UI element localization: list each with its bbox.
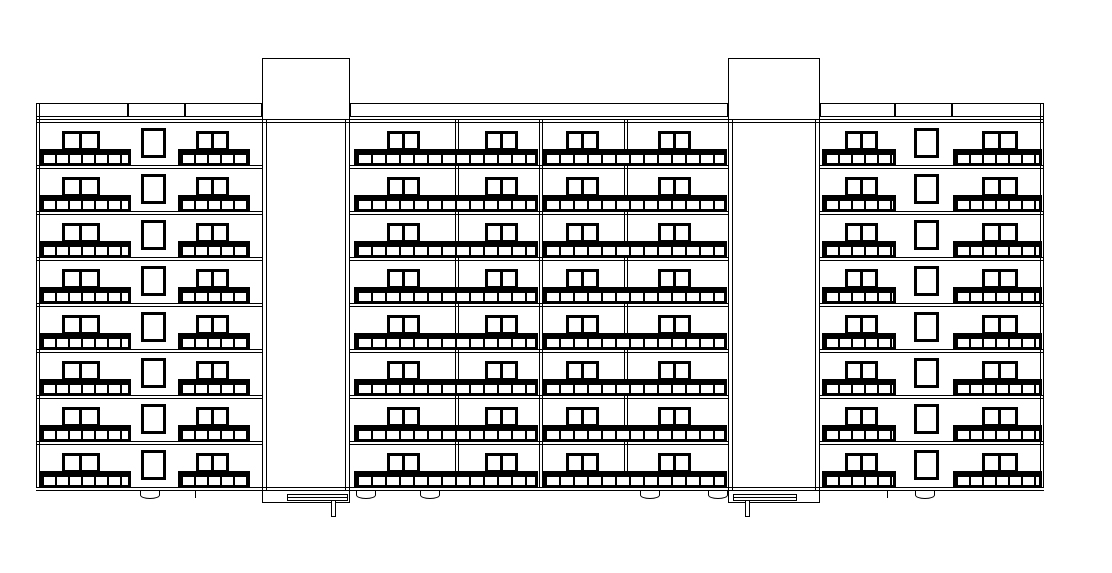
floor-slab-line bbox=[36, 352, 262, 353]
balcony-balusters bbox=[953, 385, 1042, 395]
balcony-window bbox=[566, 177, 599, 197]
floor-slab-line bbox=[36, 306, 262, 307]
balcony-balusters bbox=[354, 477, 538, 487]
balcony-balusters bbox=[39, 247, 131, 257]
stair-tower-2-wall-inner-line bbox=[732, 119, 733, 490]
balcony-window bbox=[387, 361, 420, 381]
floor-slab-line bbox=[36, 441, 262, 442]
balcony-balusters bbox=[542, 477, 727, 487]
balcony-window bbox=[566, 223, 599, 243]
balcony-window bbox=[845, 407, 878, 427]
window-mullion bbox=[79, 456, 82, 470]
building-edge-line bbox=[1043, 103, 1044, 487]
window-mullion bbox=[998, 410, 1001, 424]
window-mullion bbox=[402, 226, 405, 240]
stair-tower-2-wall-inner-line bbox=[815, 119, 816, 490]
small-window bbox=[914, 358, 939, 388]
balcony-balusters bbox=[354, 431, 538, 441]
balcony-window bbox=[196, 453, 229, 473]
canopy-post bbox=[745, 500, 750, 517]
window-mullion bbox=[998, 226, 1001, 240]
balcony-balusters bbox=[354, 247, 538, 257]
balcony-window bbox=[62, 269, 100, 289]
balcony-balusters bbox=[953, 293, 1042, 303]
drain-tick bbox=[887, 490, 888, 498]
window-mullion bbox=[998, 134, 1001, 148]
vent-arc bbox=[708, 491, 728, 499]
balcony-balusters bbox=[354, 385, 538, 395]
window-mullion bbox=[860, 318, 863, 332]
window-mullion bbox=[581, 272, 584, 286]
window-mullion bbox=[860, 456, 863, 470]
floor-slab-line bbox=[820, 306, 1044, 307]
balcony-balusters bbox=[953, 247, 1042, 257]
floor-slab-line bbox=[36, 165, 262, 166]
floor-slab-line bbox=[36, 257, 262, 258]
balcony-balusters bbox=[39, 201, 131, 211]
window-mullion bbox=[500, 364, 503, 378]
floor-slab-line bbox=[820, 398, 1044, 399]
balcony-balusters bbox=[178, 431, 250, 441]
balcony-balusters bbox=[39, 431, 131, 441]
window-mullion bbox=[581, 318, 584, 332]
floor-slab-line bbox=[36, 260, 262, 261]
balcony-window bbox=[196, 223, 229, 243]
drain-tick bbox=[195, 490, 196, 498]
small-window bbox=[141, 450, 166, 480]
balcony-window bbox=[387, 407, 420, 427]
window-mullion bbox=[211, 318, 214, 332]
balcony-window bbox=[485, 223, 518, 243]
balcony-window bbox=[845, 223, 878, 243]
parapet-band-segment bbox=[952, 103, 1044, 117]
window-mullion bbox=[402, 318, 405, 332]
small-window bbox=[141, 358, 166, 388]
vent-arc bbox=[356, 491, 376, 499]
balcony-window bbox=[387, 269, 420, 289]
small-window bbox=[141, 174, 166, 204]
balcony-balusters bbox=[542, 339, 727, 349]
window-mullion bbox=[211, 226, 214, 240]
balcony-balusters bbox=[178, 339, 250, 349]
floor-slab-line bbox=[36, 211, 262, 212]
entrance-canopy bbox=[287, 494, 348, 501]
balcony-balusters bbox=[953, 201, 1042, 211]
small-window bbox=[914, 220, 939, 250]
balcony-window bbox=[387, 131, 420, 151]
window-mullion bbox=[673, 180, 676, 194]
window-mullion bbox=[998, 456, 1001, 470]
parapet-band-segment bbox=[895, 103, 952, 117]
balcony-balusters bbox=[542, 293, 727, 303]
window-mullion bbox=[79, 272, 82, 286]
balcony-window bbox=[485, 131, 518, 151]
floor-slab-line bbox=[36, 168, 262, 169]
balcony-balusters bbox=[178, 293, 250, 303]
vent-arc bbox=[140, 491, 160, 499]
small-window bbox=[141, 312, 166, 342]
window-mullion bbox=[998, 318, 1001, 332]
window-mullion bbox=[500, 226, 503, 240]
floor-slab-line bbox=[820, 303, 1044, 304]
balcony-window bbox=[982, 315, 1018, 335]
balcony-balusters bbox=[354, 293, 538, 303]
vent-arc bbox=[915, 491, 935, 499]
floor-slab-line bbox=[36, 303, 262, 304]
window-mullion bbox=[581, 180, 584, 194]
balcony-window bbox=[62, 407, 100, 427]
balcony-balusters bbox=[39, 477, 131, 487]
balcony-balusters bbox=[542, 155, 727, 165]
balcony-balusters bbox=[953, 431, 1042, 441]
balcony-window bbox=[982, 453, 1018, 473]
parapet-band-segment bbox=[36, 103, 128, 117]
roof-slab-line bbox=[36, 122, 1044, 123]
balcony-balusters bbox=[178, 247, 250, 257]
window-mullion bbox=[211, 134, 214, 148]
balcony-window bbox=[387, 223, 420, 243]
parapet-band-segment bbox=[350, 103, 728, 117]
small-window bbox=[914, 266, 939, 296]
balcony-window bbox=[566, 361, 599, 381]
balcony-window bbox=[485, 315, 518, 335]
vent-arc bbox=[640, 491, 660, 499]
window-mullion bbox=[581, 364, 584, 378]
window-mullion bbox=[673, 456, 676, 470]
window-mullion bbox=[673, 318, 676, 332]
floor-slab-line bbox=[36, 214, 262, 215]
window-mullion bbox=[998, 180, 1001, 194]
floor-slab-line bbox=[820, 260, 1044, 261]
window-mullion bbox=[860, 272, 863, 286]
window-mullion bbox=[211, 456, 214, 470]
balcony-balusters bbox=[542, 201, 727, 211]
window-mullion bbox=[673, 226, 676, 240]
window-mullion bbox=[581, 410, 584, 424]
entrance-canopy bbox=[733, 494, 797, 501]
small-window bbox=[141, 404, 166, 434]
balcony-balusters bbox=[542, 247, 727, 257]
window-mullion bbox=[860, 364, 863, 378]
floor-slab-line bbox=[820, 168, 1044, 169]
window-mullion bbox=[860, 180, 863, 194]
balcony-balusters bbox=[354, 201, 538, 211]
balcony-window bbox=[62, 453, 100, 473]
stair-tower-1-wall-inner-line bbox=[266, 119, 267, 490]
canopy-mid-line bbox=[288, 497, 347, 498]
balcony-window bbox=[566, 315, 599, 335]
window-mullion bbox=[500, 134, 503, 148]
balcony-window bbox=[982, 131, 1018, 151]
floor-slab-line bbox=[820, 352, 1044, 353]
small-window bbox=[914, 174, 939, 204]
balcony-window bbox=[658, 131, 691, 151]
parapet-band-segment bbox=[820, 103, 895, 117]
balcony-balusters bbox=[354, 339, 538, 349]
elevation-drawing bbox=[0, 0, 1112, 573]
balcony-window bbox=[845, 361, 878, 381]
balcony-balusters bbox=[178, 385, 250, 395]
balcony-window bbox=[196, 177, 229, 197]
balcony-balusters bbox=[39, 293, 131, 303]
balcony-window bbox=[982, 223, 1018, 243]
balcony-window bbox=[196, 315, 229, 335]
balcony-balusters bbox=[822, 477, 896, 487]
balcony-window bbox=[196, 131, 229, 151]
stair-tower-1-wall-inner-line bbox=[345, 119, 346, 490]
balcony-window bbox=[485, 269, 518, 289]
floor-slab-line bbox=[820, 444, 1044, 445]
balcony-window bbox=[845, 177, 878, 197]
balcony-window bbox=[658, 269, 691, 289]
stair-tower-1-base-line bbox=[262, 502, 350, 503]
window-mullion bbox=[673, 272, 676, 286]
balcony-window bbox=[485, 453, 518, 473]
floor-slab-line bbox=[820, 214, 1044, 215]
balcony-window bbox=[387, 315, 420, 335]
balcony-balusters bbox=[822, 155, 896, 165]
stair-tower-2-wall-line bbox=[728, 58, 729, 502]
balcony-window bbox=[658, 361, 691, 381]
balcony-balusters bbox=[178, 477, 250, 487]
balcony-balusters bbox=[822, 385, 896, 395]
balcony-window bbox=[485, 361, 518, 381]
balcony-balusters bbox=[39, 155, 131, 165]
small-window bbox=[141, 266, 166, 296]
floor-slab-line bbox=[36, 349, 262, 350]
small-window bbox=[914, 404, 939, 434]
balcony-balusters bbox=[822, 339, 896, 349]
window-mullion bbox=[402, 456, 405, 470]
balcony-window bbox=[566, 269, 599, 289]
balcony-window bbox=[845, 315, 878, 335]
balcony-window bbox=[845, 453, 878, 473]
ground-line bbox=[36, 490, 1044, 491]
window-mullion bbox=[860, 226, 863, 240]
balcony-window bbox=[62, 223, 100, 243]
window-mullion bbox=[79, 318, 82, 332]
window-mullion bbox=[998, 272, 1001, 286]
small-window bbox=[141, 128, 166, 158]
balcony-window bbox=[982, 269, 1018, 289]
floor-slab-line bbox=[36, 398, 262, 399]
window-mullion bbox=[79, 226, 82, 240]
small-window bbox=[141, 220, 166, 250]
floor-slab-line bbox=[820, 441, 1044, 442]
balcony-window bbox=[62, 315, 100, 335]
balcony-balusters bbox=[822, 201, 896, 211]
balcony-balusters bbox=[39, 339, 131, 349]
window-mullion bbox=[402, 364, 405, 378]
balcony-balusters bbox=[822, 431, 896, 441]
ground-line bbox=[36, 487, 1044, 488]
balcony-window bbox=[845, 269, 878, 289]
balcony-window bbox=[62, 131, 100, 151]
canopy-post bbox=[331, 500, 336, 517]
window-mullion bbox=[211, 180, 214, 194]
window-mullion bbox=[402, 410, 405, 424]
balcony-balusters bbox=[39, 385, 131, 395]
balcony-balusters bbox=[178, 155, 250, 165]
balcony-window bbox=[658, 453, 691, 473]
balcony-balusters bbox=[822, 247, 896, 257]
window-mullion bbox=[402, 180, 405, 194]
bay-divider-line bbox=[539, 119, 540, 487]
balcony-window bbox=[566, 407, 599, 427]
balcony-window bbox=[485, 407, 518, 427]
balcony-window bbox=[62, 361, 100, 381]
parapet-band-segment bbox=[185, 103, 262, 117]
balcony-balusters bbox=[953, 339, 1042, 349]
window-mullion bbox=[402, 134, 405, 148]
stair-tower-1-wall-line bbox=[262, 58, 263, 502]
window-mullion bbox=[500, 180, 503, 194]
window-mullion bbox=[79, 180, 82, 194]
window-mullion bbox=[211, 272, 214, 286]
building-edge-line bbox=[36, 103, 37, 487]
balcony-balusters bbox=[354, 155, 538, 165]
vent-arc bbox=[420, 491, 440, 499]
balcony-window bbox=[196, 361, 229, 381]
window-mullion bbox=[581, 134, 584, 148]
balcony-balusters bbox=[953, 155, 1042, 165]
floor-slab-line bbox=[820, 211, 1044, 212]
stair-tower-2-wall-line bbox=[819, 58, 820, 502]
window-mullion bbox=[402, 272, 405, 286]
window-mullion bbox=[211, 364, 214, 378]
window-mullion bbox=[500, 410, 503, 424]
balcony-window bbox=[982, 361, 1018, 381]
floor-slab-line bbox=[820, 395, 1044, 396]
balcony-window bbox=[658, 223, 691, 243]
balcony-balusters bbox=[822, 293, 896, 303]
balcony-window bbox=[566, 453, 599, 473]
parapet-band-segment bbox=[128, 103, 185, 117]
balcony-window bbox=[982, 407, 1018, 427]
window-mullion bbox=[860, 134, 863, 148]
window-mullion bbox=[79, 410, 82, 424]
floor-slab-line bbox=[36, 395, 262, 396]
balcony-balusters bbox=[953, 477, 1042, 487]
balcony-window bbox=[658, 407, 691, 427]
window-mullion bbox=[673, 134, 676, 148]
canopy-mid-line bbox=[734, 497, 796, 498]
balcony-window bbox=[196, 269, 229, 289]
window-mullion bbox=[581, 456, 584, 470]
stair-tower-2-top-line bbox=[728, 58, 820, 59]
floor-slab-line bbox=[820, 165, 1044, 166]
balcony-window bbox=[566, 131, 599, 151]
window-mullion bbox=[79, 134, 82, 148]
window-mullion bbox=[673, 410, 676, 424]
balcony-window bbox=[845, 131, 878, 151]
floor-slab-line bbox=[820, 349, 1044, 350]
balcony-window bbox=[658, 315, 691, 335]
window-mullion bbox=[211, 410, 214, 424]
stair-tower-1-top-line bbox=[262, 58, 350, 59]
roof-slab-line bbox=[36, 119, 1044, 120]
small-window bbox=[914, 312, 939, 342]
floor-slab-line bbox=[820, 257, 1044, 258]
balcony-window bbox=[982, 177, 1018, 197]
balcony-balusters bbox=[542, 385, 727, 395]
balcony-window bbox=[62, 177, 100, 197]
window-mullion bbox=[673, 364, 676, 378]
window-mullion bbox=[581, 226, 584, 240]
window-mullion bbox=[500, 272, 503, 286]
balcony-balusters bbox=[178, 201, 250, 211]
window-mullion bbox=[79, 364, 82, 378]
window-mullion bbox=[860, 410, 863, 424]
floor-slab-line bbox=[36, 444, 262, 445]
stair-tower-1-wall-line bbox=[349, 58, 350, 502]
balcony-window bbox=[387, 177, 420, 197]
balcony-window bbox=[196, 407, 229, 427]
small-window bbox=[914, 450, 939, 480]
balcony-window bbox=[658, 177, 691, 197]
small-window bbox=[914, 128, 939, 158]
window-mullion bbox=[998, 364, 1001, 378]
balcony-balusters bbox=[542, 431, 727, 441]
balcony-window bbox=[387, 453, 420, 473]
stair-tower-2-base-line bbox=[728, 502, 820, 503]
balcony-window bbox=[485, 177, 518, 197]
window-mullion bbox=[500, 318, 503, 332]
window-mullion bbox=[500, 456, 503, 470]
